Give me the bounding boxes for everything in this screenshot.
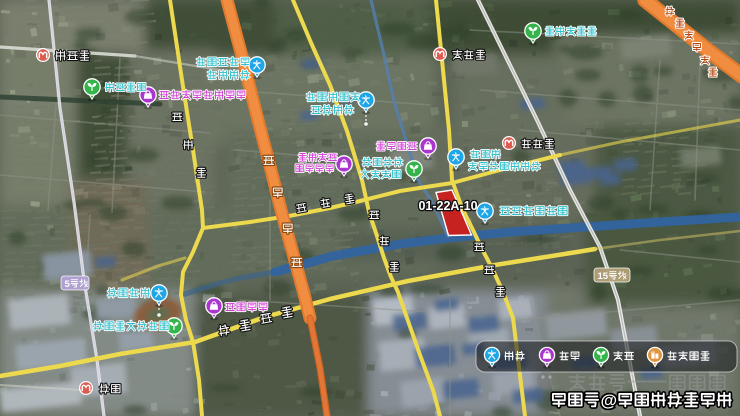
svg-text:@: @ xyxy=(601,391,618,410)
svg-text:01-22A-10: 01-22A-10 xyxy=(418,199,477,213)
svg-text:15: 15 xyxy=(598,271,609,282)
svg-text:5: 5 xyxy=(65,279,71,290)
